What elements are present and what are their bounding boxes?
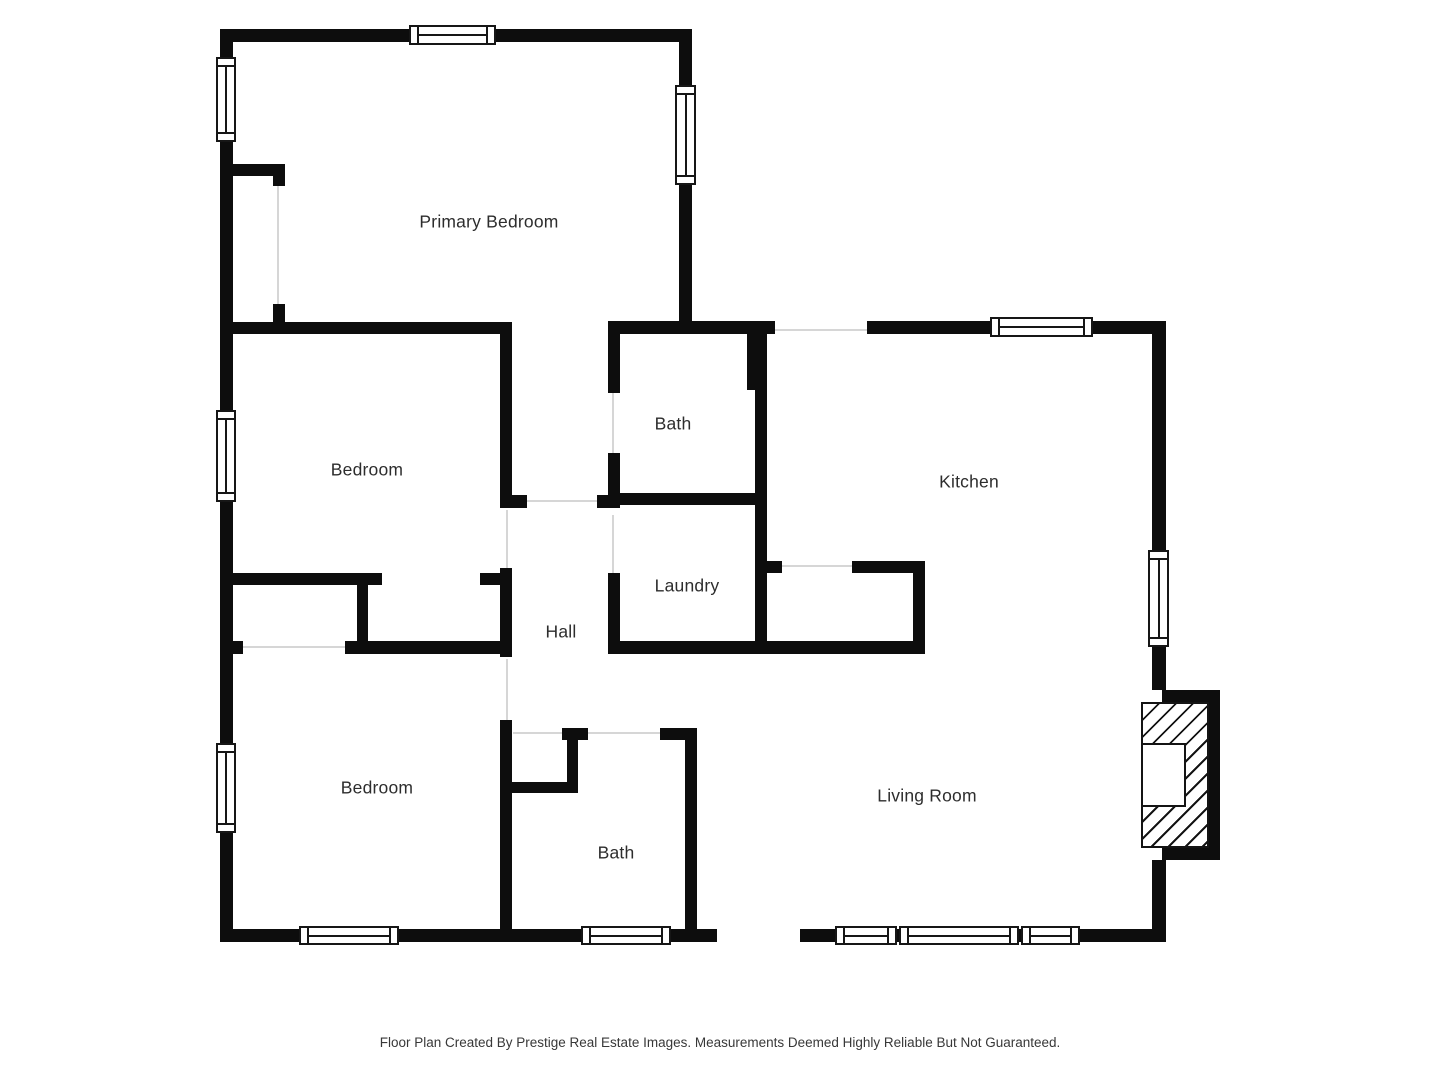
window-living-room-bottom-b xyxy=(899,926,1019,945)
door-opening-laundry xyxy=(612,515,614,573)
window-bedroom-lower-left xyxy=(216,743,236,833)
interior-wall-laundry-pantry-bottom xyxy=(608,641,925,654)
door-opening-kitchen-exterior xyxy=(775,329,867,331)
room-label-hall: Hall xyxy=(546,622,577,643)
interior-wall-laundry-right xyxy=(755,505,767,654)
door-opening-primary-closet xyxy=(277,186,279,304)
interior-wall-bath-lower-right xyxy=(685,728,697,942)
room-label-bath-lower: Bath xyxy=(598,843,635,864)
interior-wall-pantry-top-stub xyxy=(767,561,782,573)
interior-wall-bedroom-lower-right xyxy=(500,720,512,942)
interior-wall-hall-top-cap xyxy=(500,495,527,508)
door-opening-bedroom-lower xyxy=(506,659,508,720)
interior-wall-bath-upper-right xyxy=(755,390,767,505)
window-bath-lower-bottom xyxy=(581,926,671,945)
interior-wall-bath-lower-top-a xyxy=(562,728,588,740)
door-opening-linen-closet xyxy=(513,732,562,734)
window-kitchen-top xyxy=(990,317,1093,337)
floor-plan: Primary Bedroom Bedroom Bath Kitchen Lau… xyxy=(0,0,1440,1080)
window-primary-bedroom-left xyxy=(216,57,236,142)
window-kitchen-right xyxy=(1148,550,1169,647)
room-label-living-room: Living Room xyxy=(877,786,976,807)
room-label-bedroom-lower: Bedroom xyxy=(341,778,413,799)
caption: Floor Plan Created By Prestige Real Esta… xyxy=(380,1035,1061,1050)
door-opening-closet-lower xyxy=(243,646,345,648)
room-label-laundry: Laundry xyxy=(655,576,720,597)
window-bedroom-middle-left xyxy=(216,410,236,502)
door-opening-bath-upper xyxy=(612,393,614,453)
window-living-room-bottom-a xyxy=(835,926,897,945)
interior-wall-bath-upper-right-thick xyxy=(747,328,767,390)
room-label-kitchen: Kitchen xyxy=(939,472,999,493)
interior-wall-primary-closet-right-a xyxy=(273,164,285,186)
interior-wall-linen-closet-bottom xyxy=(503,782,578,793)
interior-wall-closets-bottom xyxy=(345,641,512,654)
window-primary-bedroom-top xyxy=(409,25,496,45)
window-bedroom-lower-bottom xyxy=(299,926,399,945)
room-label-bedroom-middle: Bedroom xyxy=(331,460,403,481)
window-living-room-bottom-c xyxy=(1021,926,1080,945)
room-label-bath-upper: Bath xyxy=(655,414,692,435)
interior-wall-pantry-right xyxy=(913,561,925,654)
door-opening-bedroom-middle xyxy=(506,510,508,568)
interior-wall-closet-jamb xyxy=(233,641,243,654)
interior-wall-bedroom-middle-top xyxy=(220,322,505,334)
interior-wall-bath-upper-left-a xyxy=(608,321,620,393)
room-label-primary-bedroom: Primary Bedroom xyxy=(419,212,558,233)
fireplace-firebox xyxy=(1141,743,1186,807)
door-opening-pantry xyxy=(782,565,852,567)
interior-wall-bath-laundry-divider xyxy=(608,493,767,505)
door-opening-bath-lower xyxy=(588,732,660,734)
interior-wall-bedroom-middle-right-upper xyxy=(500,322,512,495)
window-primary-bedroom-right xyxy=(675,85,696,185)
door-opening-hall-north xyxy=(527,500,597,502)
